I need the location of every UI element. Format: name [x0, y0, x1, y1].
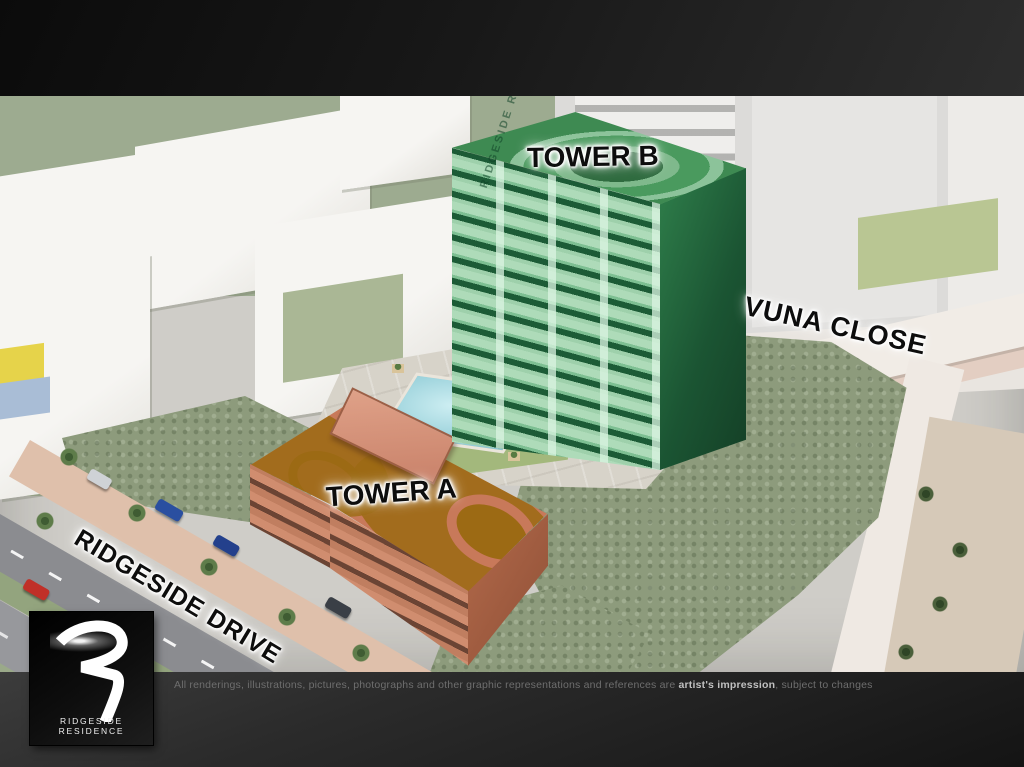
palm-tree [200, 558, 218, 576]
palm-tree [352, 644, 370, 662]
palm-tree [60, 448, 78, 466]
tower-b-label: TOWER B [527, 140, 659, 174]
top-frame-band [0, 0, 1024, 96]
blue-roof-detail [0, 376, 50, 419]
disclaimer-text: All renderings, illustrations, pictures,… [174, 679, 974, 691]
ridgeside-residence-logo: RIDGESIDE RESIDENCE [30, 612, 153, 745]
planter [392, 364, 404, 373]
lens-flare [50, 630, 124, 652]
disclaimer-prefix: All renderings, illustrations, pictures,… [174, 679, 678, 691]
palm-tree [128, 504, 146, 522]
palm-tree [36, 512, 54, 530]
palm-tree [952, 542, 968, 558]
palm-tree [898, 644, 914, 660]
disclaimer-emphasis: artist's impression [678, 679, 775, 691]
palm-tree [918, 486, 934, 502]
logo-brand-text: RIDGESIDE RESIDENCE [30, 716, 153, 736]
planter [508, 452, 520, 461]
palm-tree [932, 596, 948, 612]
tower-b-facade-columns [452, 148, 660, 470]
palm-tree [278, 608, 296, 626]
rendering-slide: RIDGESIDE RESIDENCE TOWER B TOWER A VUNA… [0, 0, 1024, 767]
disclaimer-suffix: , subject to changes [775, 679, 872, 691]
tower-b-side-wall [660, 168, 746, 470]
